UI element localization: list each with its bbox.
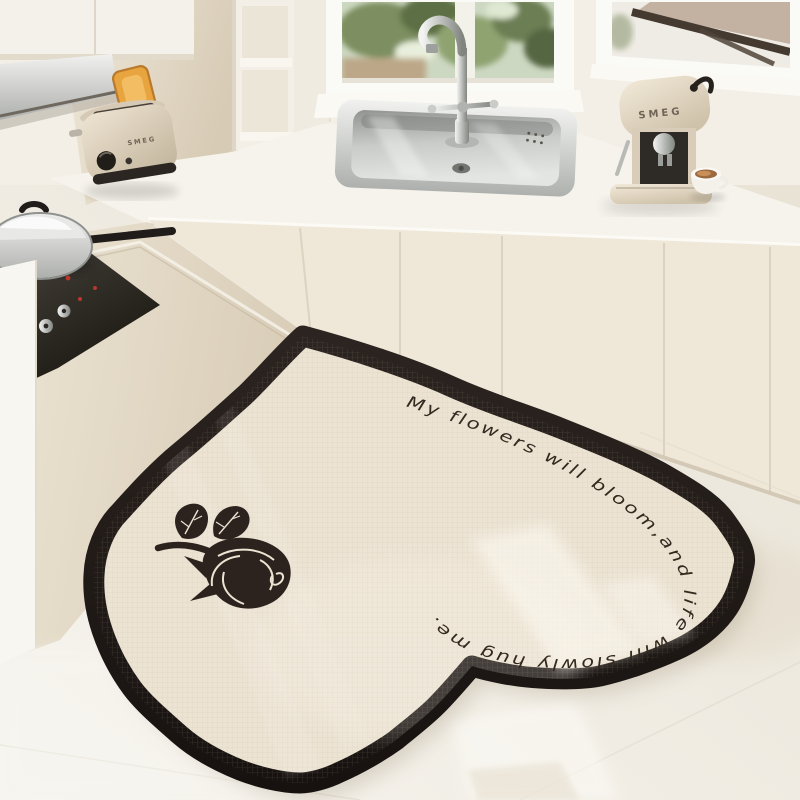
portafilter <box>653 133 675 155</box>
sink <box>334 99 578 197</box>
open-shelves <box>232 0 294 152</box>
upper-cabinets <box>0 0 194 60</box>
kitchen-photo: SMEG SMEG <box>0 0 800 800</box>
left-wall <box>0 260 36 664</box>
